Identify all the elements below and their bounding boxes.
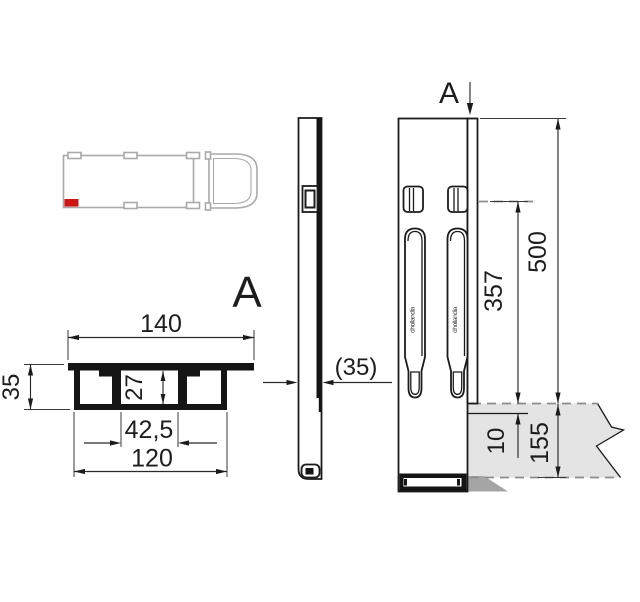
dim-10: 10 xyxy=(483,428,510,455)
side-view-thick-band xyxy=(317,118,322,398)
dim-42-5: 42,5 xyxy=(125,416,174,444)
truck-hatch-bottom-right xyxy=(187,203,200,209)
drawing-canvas: A 140 35 27 42,5 xyxy=(0,0,640,597)
dim-35: 35 xyxy=(0,374,25,401)
section-view-label: A xyxy=(232,268,262,317)
arrowhead-42-right xyxy=(178,440,189,445)
arrowhead-500-bottom xyxy=(555,393,560,404)
front-view-foot-nub-left xyxy=(404,479,407,486)
arrowhead-357-bottom xyxy=(515,393,520,404)
handle-logo-left: dhollandia xyxy=(410,306,417,332)
dim-140: 140 xyxy=(140,310,182,338)
dim-155: 155 xyxy=(526,422,554,464)
handle-logo-right: dhollandia xyxy=(452,306,459,332)
front-view-foot-window xyxy=(404,478,462,487)
side-view-foot-insert xyxy=(306,468,314,475)
arrowhead-140-left xyxy=(68,335,79,340)
side-view-clip-inner xyxy=(306,191,315,208)
arrowhead-42-left xyxy=(110,440,121,445)
section-tab-right xyxy=(187,371,200,377)
front-view: dhollandia dhollandia A 357 10 500 xyxy=(399,77,567,492)
dim-357: 357 xyxy=(480,270,508,312)
section-tab-left xyxy=(99,371,112,377)
dim-thickness-35: (35) xyxy=(335,354,378,381)
arrowhead-120-left xyxy=(74,469,85,474)
truck-cab-outline xyxy=(209,154,257,208)
truck-trailer-body xyxy=(64,156,194,208)
arrowhead-35-top xyxy=(28,365,33,376)
section-cut-arrowhead xyxy=(467,103,473,115)
truck-top-view-icon xyxy=(64,152,258,210)
truck-hatch-top-middle xyxy=(124,153,137,159)
section-cut-label: A xyxy=(439,77,459,110)
technical-drawing-page: A 140 35 27 42,5 xyxy=(0,0,640,597)
truck-mirror-top xyxy=(206,152,211,159)
dim-27: 27 xyxy=(121,374,148,401)
truck-mirror-bottom xyxy=(206,203,211,210)
side-view-band-taper xyxy=(319,398,322,412)
side-view: (35) xyxy=(263,118,392,479)
arrowhead-35-bottom xyxy=(28,399,33,410)
arrowhead-140-right xyxy=(243,335,254,340)
arrowhead-t35-right xyxy=(323,380,334,385)
section-top-flange xyxy=(68,363,254,371)
front-view-foot-nub-right xyxy=(457,479,460,486)
arrowhead-357-top xyxy=(515,202,520,213)
truck-hatch-top-left xyxy=(68,153,81,159)
cross-section-view: 140 35 27 42,5 120 xyxy=(0,310,254,477)
arrowhead-t35-left xyxy=(287,380,298,385)
arrowhead-120-right xyxy=(216,469,227,474)
dim-120: 120 xyxy=(131,445,173,473)
front-view-right-strip xyxy=(468,119,478,404)
dim-500: 500 xyxy=(524,231,552,273)
part-location-marker xyxy=(65,199,79,207)
truck-hatch-top-right xyxy=(187,153,200,159)
arrowhead-500-top xyxy=(555,119,560,130)
truck-hatch-bottom-middle xyxy=(124,203,137,209)
